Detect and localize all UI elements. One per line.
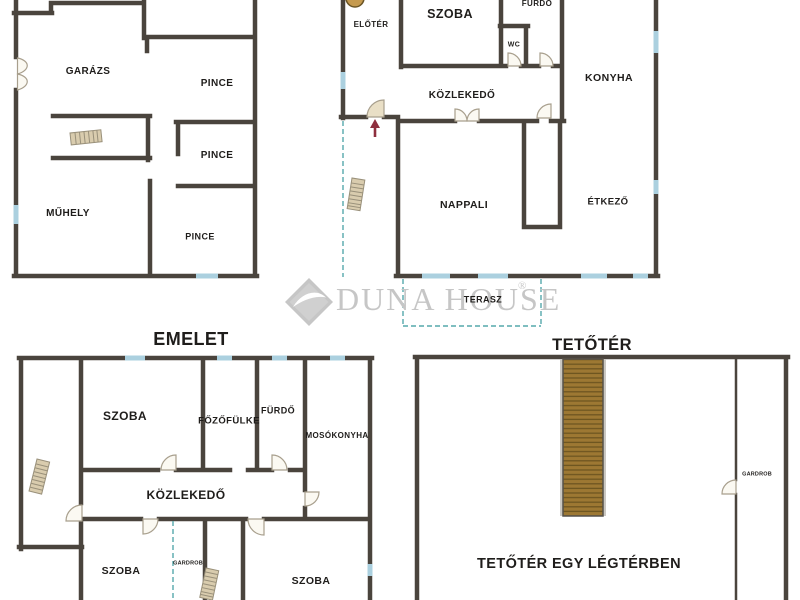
room-label-pince-1: PINCE — [201, 79, 234, 89]
door-arcs-layer — [722, 480, 736, 494]
room-label-nappali: NAPPALI — [440, 200, 488, 211]
room-label-terasz: TERASZ — [464, 296, 502, 305]
floor-title-emelet: EMELET — [153, 330, 228, 348]
room-label-gardrob-tet: GARDROB — [742, 472, 772, 478]
room-label-furdo-fsz: FÜRDŐ — [522, 0, 552, 8]
room-label-konyha: KONYHA — [585, 73, 633, 84]
room-label-szoba-em2: SZOBA — [102, 566, 141, 577]
garage-door-icon — [18, 58, 28, 90]
room-label-garazs: GARÁZS — [66, 67, 111, 77]
room-label-pince-2: PINCE — [201, 151, 234, 161]
floorplan-sheet: DUNA HOUSE ® GARÁZS PINCE PINCE MŰHELY P… — [0, 0, 800, 600]
stairs-icon — [347, 178, 365, 211]
room-label-fozofulke: FŐZŐFÜLKE — [198, 416, 260, 426]
room-label-kozlekedo-em: KÖZLEKEDŐ — [147, 489, 226, 501]
room-label-mosokonyha: MOSÓKONYHA — [305, 432, 368, 440]
room-label-eloter: ELŐTÉR — [354, 21, 389, 29]
room-label-szoba-fsz: SZOBA — [427, 8, 473, 21]
attic-note-label: TETŐTÉR EGY LÉGTÉRBEN — [477, 557, 681, 572]
room-label-pince-3: PINCE — [185, 233, 215, 242]
room-label-kozlekedo-fsz: KÖZLEKEDŐ — [429, 91, 495, 101]
room-label-muhely: MŰHELY — [46, 209, 90, 219]
room-label-szoba-em3: SZOBA — [292, 576, 331, 587]
room-label-etkezo: ÉTKEZŐ — [588, 197, 629, 207]
attic-staircase — [560, 359, 606, 516]
stairs-icon — [200, 568, 219, 600]
ground-floor-plan — [341, 0, 658, 326]
stairs-icon — [70, 130, 102, 145]
duna-house-logo-icon — [285, 278, 333, 326]
room-label-gardrob-em: GARDROB — [173, 561, 203, 567]
room-label-wc: WC — [508, 42, 520, 49]
room-label-szoba-em1: SZOBA — [103, 410, 147, 422]
registered-mark: ® — [518, 281, 526, 292]
stove-icon — [346, 0, 364, 7]
floor-title-tetoter: TETŐTÉR — [552, 337, 632, 354]
basement-plan — [14, 0, 257, 276]
stairs-icon — [29, 459, 50, 494]
room-label-furdo-em: FÜRDŐ — [261, 407, 295, 416]
entrance-arrow-icon — [370, 119, 380, 137]
watermark-brand: DUNA HOUSE — [336, 283, 561, 315]
